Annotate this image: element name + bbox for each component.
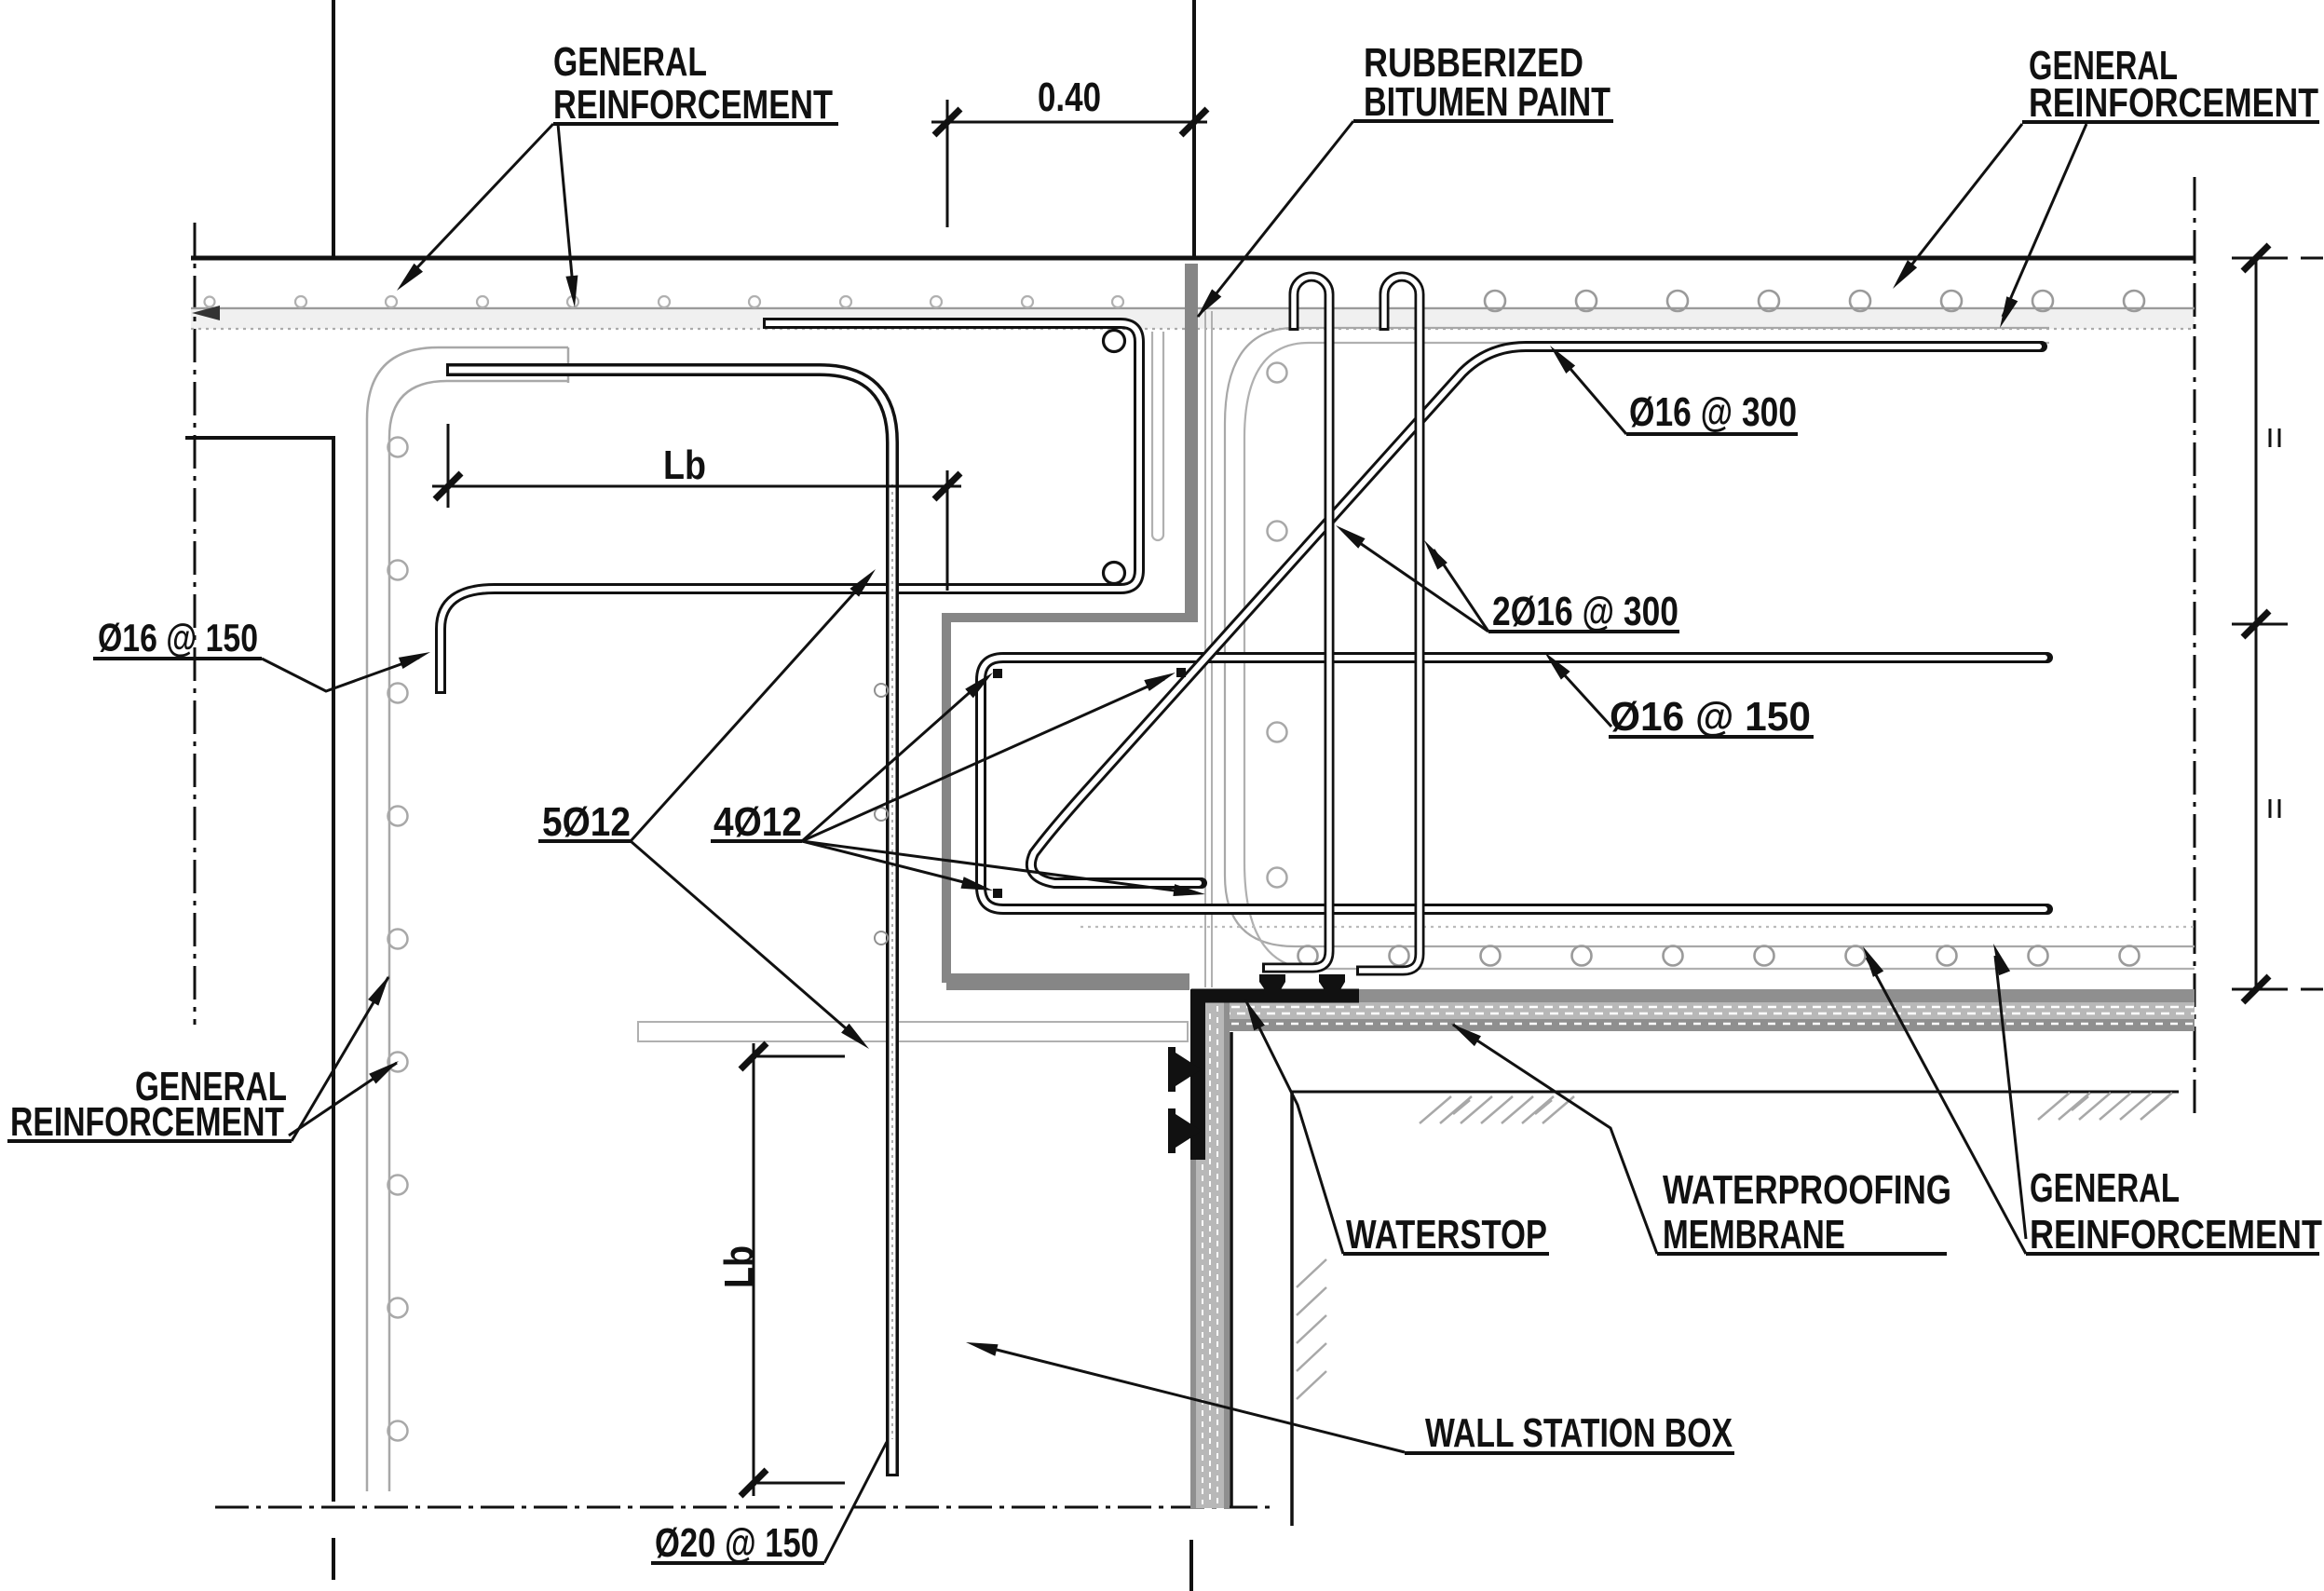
svg-text:0.40: 0.40 [1038, 75, 1101, 120]
svg-text:Ø16 @ 150: Ø16 @ 150 [98, 616, 258, 660]
svg-text:GENERAL: GENERAL [553, 39, 707, 85]
svg-text:Ø16 @ 150: Ø16 @ 150 [1610, 694, 1811, 740]
svg-text:REINFORCEMENT: REINFORCEMENT [10, 1099, 284, 1145]
svg-text:GENERAL: GENERAL [2030, 1165, 2180, 1211]
svg-text:2Ø16 @ 300: 2Ø16 @ 300 [1492, 589, 1678, 634]
svg-text:WATERSTOP: WATERSTOP [1346, 1212, 1547, 1258]
svg-text:4Ø12: 4Ø12 [714, 799, 802, 845]
svg-text:REINFORCEMENT: REINFORCEMENT [2029, 80, 2318, 126]
svg-text:WALL STATION BOX: WALL STATION BOX [1425, 1410, 1733, 1456]
svg-text:Lb: Lb [663, 442, 706, 488]
svg-text:REINFORCEMENT: REINFORCEMENT [2030, 1212, 2322, 1258]
svg-text:5Ø12: 5Ø12 [542, 799, 631, 845]
svg-text:REINFORCEMENT: REINFORCEMENT [553, 82, 833, 128]
svg-text:WATERPROOFING: WATERPROOFING [1663, 1167, 1951, 1213]
svg-text:Lb: Lb [716, 1245, 762, 1288]
svg-text:Ø20 @ 150: Ø20 @ 150 [655, 1520, 819, 1566]
svg-text:Ø16 @ 300: Ø16 @ 300 [1629, 389, 1797, 435]
svg-text:BITUMEN PAINT: BITUMEN PAINT [1364, 79, 1610, 125]
svg-text:MEMBRANE: MEMBRANE [1663, 1212, 1845, 1258]
